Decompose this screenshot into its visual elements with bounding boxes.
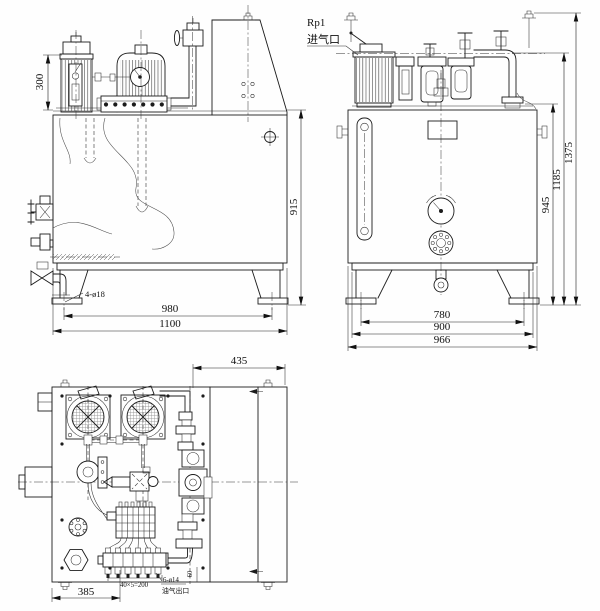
filter-regulator: [418, 57, 446, 66]
lifting-lug-icon: [344, 13, 358, 20]
technical-drawing-page: 300 915 4-ø18 980 1100: [0, 0, 600, 611]
suction-pipes: [53, 118, 174, 249]
lifting-lug-icon: [522, 11, 536, 18]
dim-text-915: 915: [288, 198, 300, 215]
three-view-drawing-canvas: 300 915 4-ø18 980 1100: [0, 0, 600, 611]
air-treatment-piping: [336, 11, 545, 109]
outlet-holes-text: 6-ø14: [163, 577, 179, 584]
lifting-lug-icon: [261, 583, 275, 590]
dim-text-1375: 1375: [563, 142, 575, 165]
riser-pipe-and-valve: [171, 18, 203, 106]
foot-holes-text: 4-ø18: [85, 289, 105, 299]
coupling-line: [84, 435, 147, 445]
outlet-port-text: 油气出口: [162, 586, 189, 595]
air-inlet-label-text: 进气口: [307, 32, 340, 46]
lubricator: [448, 58, 474, 66]
dim-text-385: 385: [78, 586, 95, 598]
pump-assembly-mid: [104, 444, 158, 508]
dim-text-1185: 1185: [551, 169, 563, 191]
dim-385: 385: [52, 570, 120, 602]
dim-text-945: 945: [540, 196, 552, 213]
lifting-lug-icon: [261, 380, 275, 387]
name-plate: [428, 121, 457, 139]
dim-text-pitch: 40×5=200: [120, 582, 149, 589]
lifting-lug-icon: [58, 583, 72, 590]
air-inlet-thread-text: Rp1: [307, 17, 325, 29]
pump-top-left: [77, 444, 107, 488]
dim-300: 300: [34, 55, 62, 110]
cleanout-flange: [429, 231, 453, 255]
dim-915: 915: [287, 110, 306, 305]
plan-view: 435 385 40×5=200 6-ø14 油气出口 60: [18, 355, 298, 602]
dim-text-435: 435: [231, 355, 248, 367]
dim-1375: 1375: [563, 13, 576, 305]
dim-text-780: 780: [434, 309, 451, 321]
callout-foot-holes: 4-ø18: [65, 289, 105, 302]
bolt-flange-top: [69, 518, 87, 536]
level-gauge: [357, 118, 372, 240]
oil-tank-side: [337, 70, 547, 309]
front-view: 300 915 4-ø18 980 1100: [28, 5, 306, 335]
outlet-bank: [98, 538, 166, 578]
pipe-column: [160, 391, 212, 565]
dim-60: 60: [187, 567, 197, 582]
dim-1100: 1100: [53, 268, 287, 335]
dim-text-966: 966: [434, 334, 451, 346]
bottom-drain: [434, 270, 448, 292]
plug-fitting: [31, 234, 53, 250]
dim-text-60: 60: [187, 570, 194, 577]
dim-text-300: 300: [34, 73, 46, 90]
shutoff-valve: [28, 196, 53, 224]
callout-outlet-holes: 6-ø14 油气出口: [156, 573, 189, 595]
dim-text-900: 900: [434, 321, 451, 333]
air-inlet-callout: Rp1 进气口: [307, 17, 358, 55]
lifting-lug-icon: [58, 380, 72, 387]
dim-text-1100: 1100: [159, 318, 181, 330]
temperature-gauge: [427, 195, 456, 224]
hex-plug-top: [64, 550, 88, 571]
alignment-target-icon: [261, 128, 279, 146]
side-view: Rp1 进气口 945 1185 1375 780 900 966: [307, 11, 581, 351]
dim-text-980: 980: [162, 303, 179, 315]
ball-valve: [360, 44, 382, 52]
pump-motor-group: [60, 32, 93, 112]
outlet-manifold: [97, 96, 171, 112]
handwheel-icon: [174, 31, 179, 46]
back-panel: [212, 5, 287, 146]
